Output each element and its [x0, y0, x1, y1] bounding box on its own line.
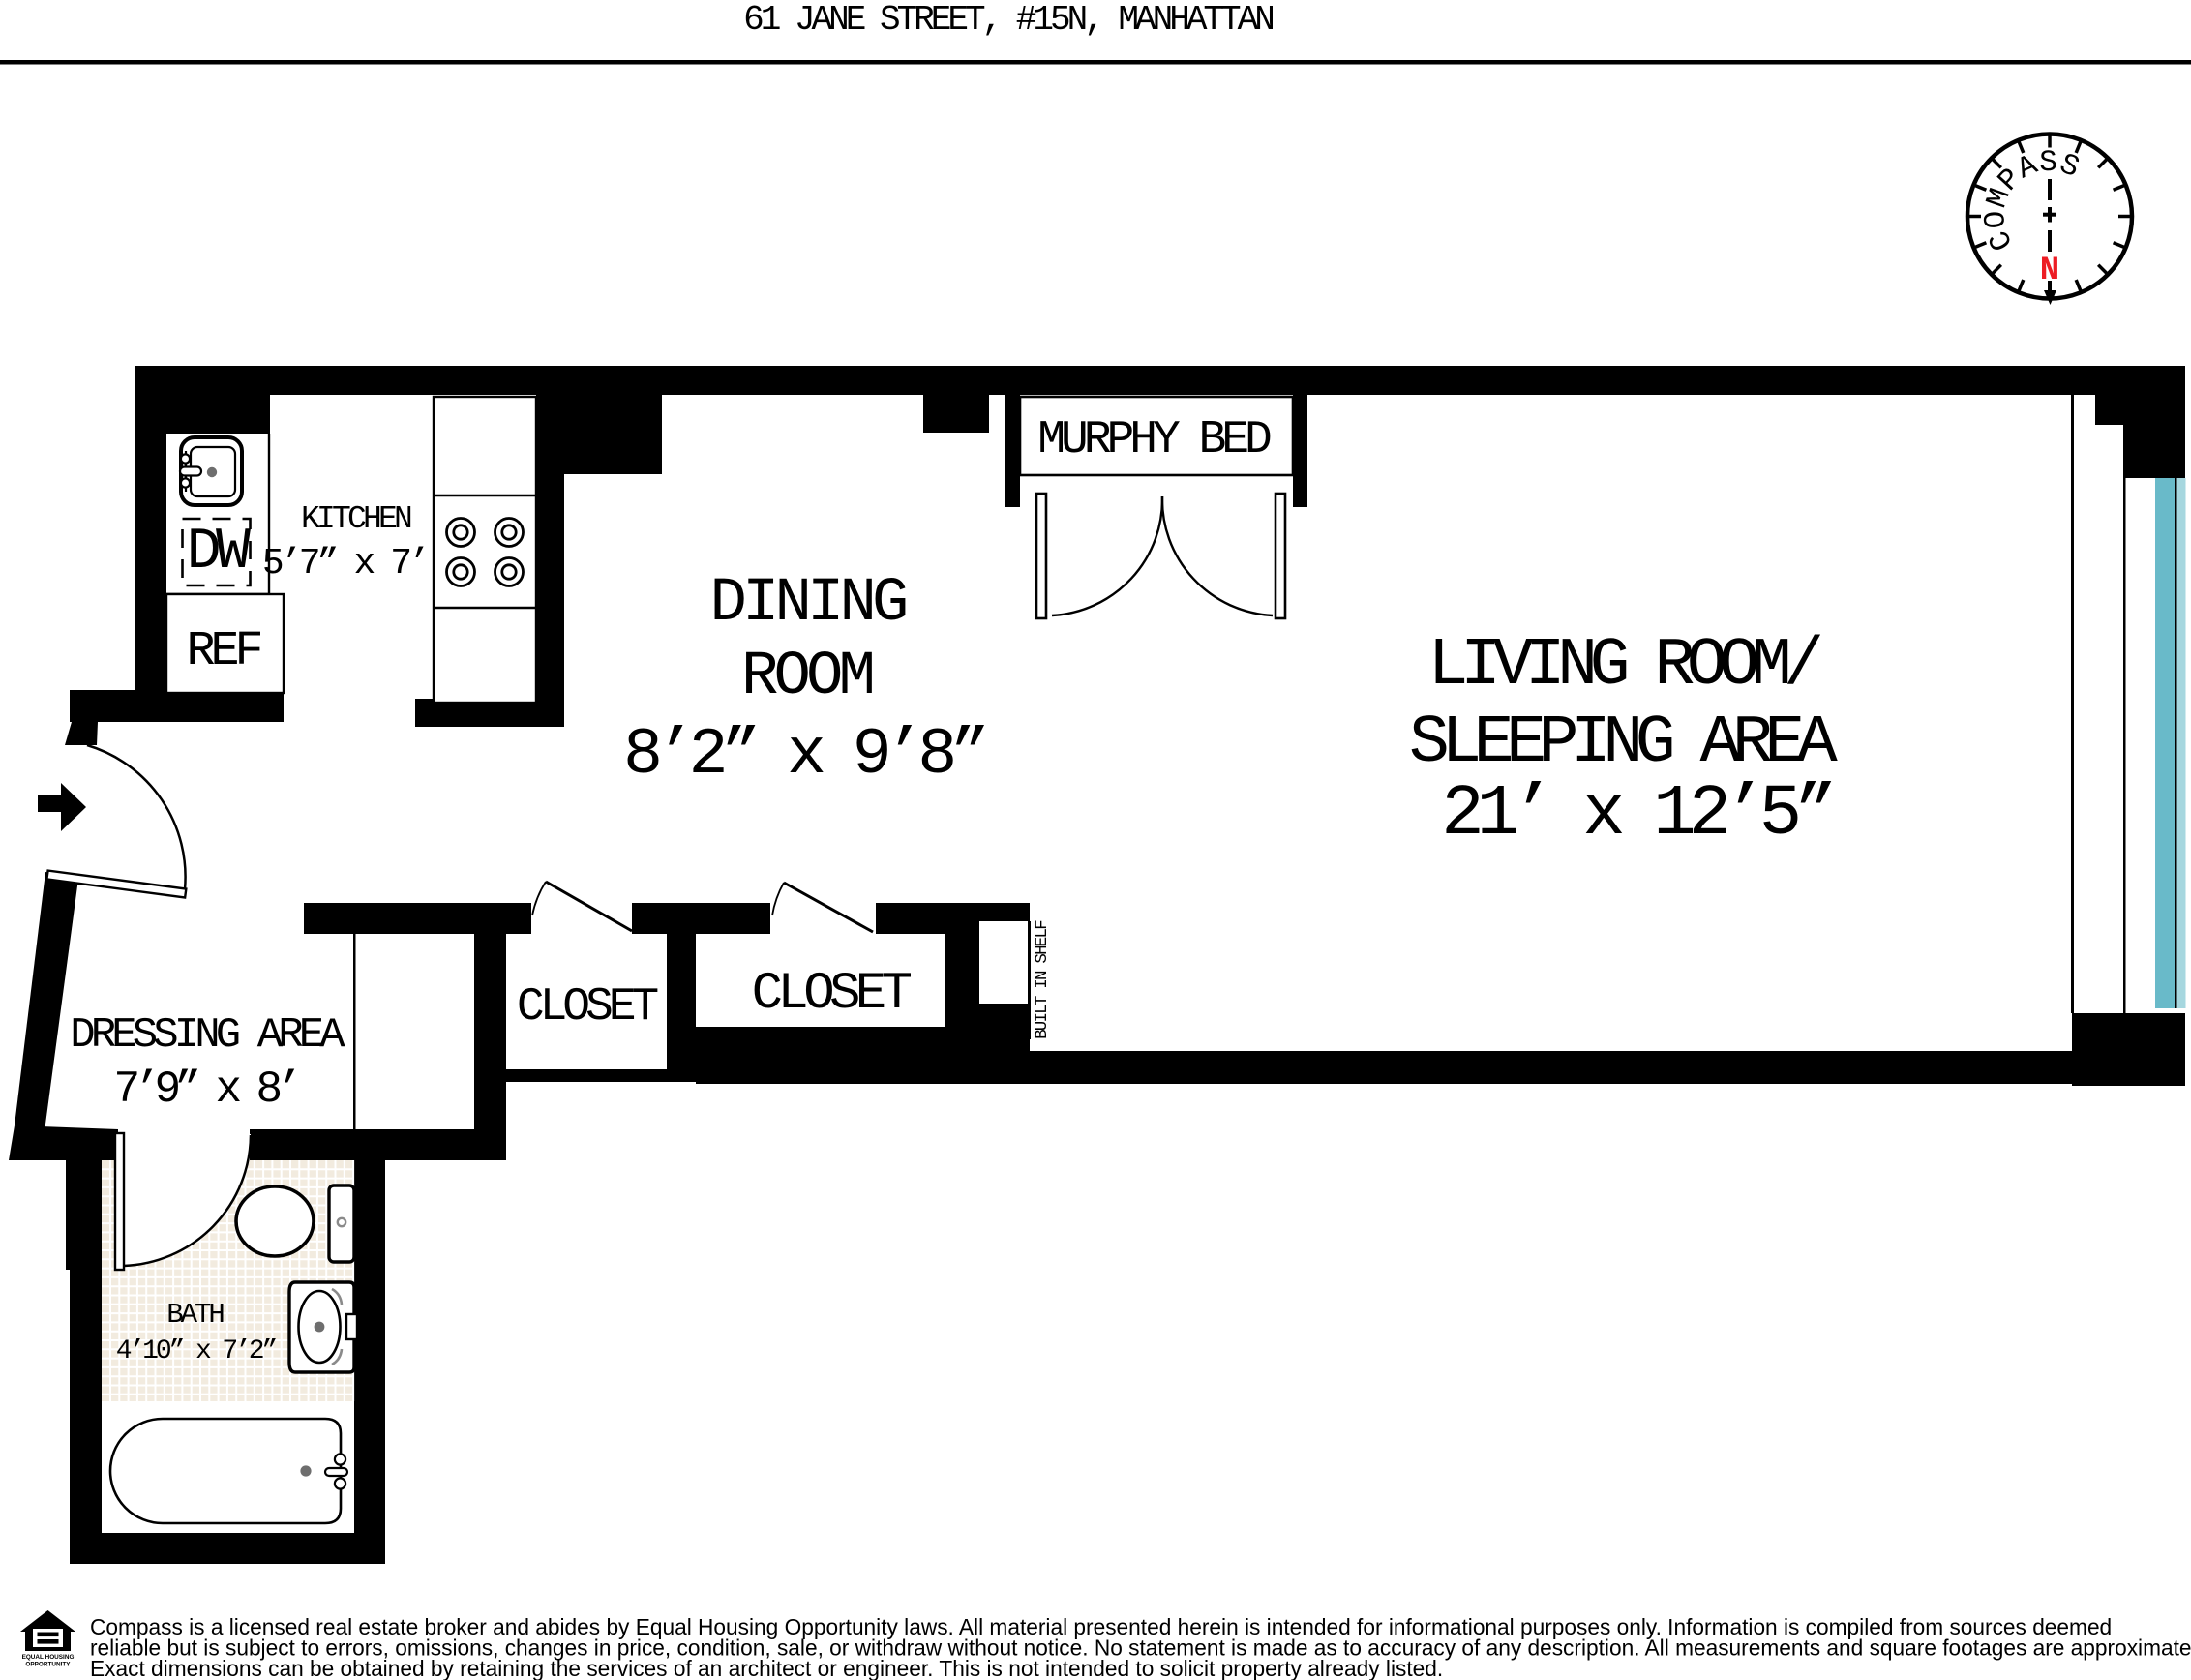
svg-text:5’7” x 7’: 5’7” x 7’: [262, 543, 427, 585]
svg-text:21’ x 12’5”: 21’ x 12’5”: [1441, 774, 1831, 855]
svg-text:S: S: [2039, 146, 2058, 180]
svg-text:SLEEPING AREA: SLEEPING AREA: [1409, 705, 1838, 782]
svg-text:ROOM: ROOM: [741, 643, 873, 712]
svg-text:7’9” x 8’: 7’9” x 8’: [113, 1065, 296, 1115]
svg-text:Exact dimensions can be obtain: Exact dimensions can be obtained by reta…: [90, 1656, 1443, 1680]
svg-text:O: O: [1979, 210, 2014, 230]
svg-text:N: N: [2040, 253, 2059, 289]
svg-text:8’2” x 9’8”: 8’2” x 9’8”: [623, 718, 984, 793]
svg-text:61 JANE STREET, #15N, MANHATTA: 61 JANE STREET, #15N, MANHATTAN: [743, 0, 1273, 40]
svg-text:OPPORTUNITY: OPPORTUNITY: [25, 1662, 71, 1668]
svg-text:EQUAL HOUSING: EQUAL HOUSING: [22, 1654, 75, 1661]
svg-text:BATH: BATH: [166, 1299, 224, 1331]
svg-text:KITCHEN: KITCHEN: [301, 501, 411, 537]
svg-text:REF: REF: [186, 624, 260, 679]
svg-text:CLOSET: CLOSET: [752, 965, 912, 1024]
svg-text:DW: DW: [187, 520, 251, 585]
svg-text:CLOSET: CLOSET: [517, 981, 658, 1034]
svg-text:BUILT IN SHELF: BUILT IN SHELF: [1033, 920, 1052, 1039]
svg-text:4’10” x 7’2”: 4’10” x 7’2”: [116, 1336, 277, 1366]
svg-text:MURPHY BED: MURPHY BED: [1037, 414, 1271, 466]
svg-text:DRESSING AREA: DRESSING AREA: [70, 1011, 345, 1060]
svg-text:LIVING ROOM/: LIVING ROOM/: [1428, 628, 1821, 705]
svg-text:DINING: DINING: [709, 569, 906, 639]
